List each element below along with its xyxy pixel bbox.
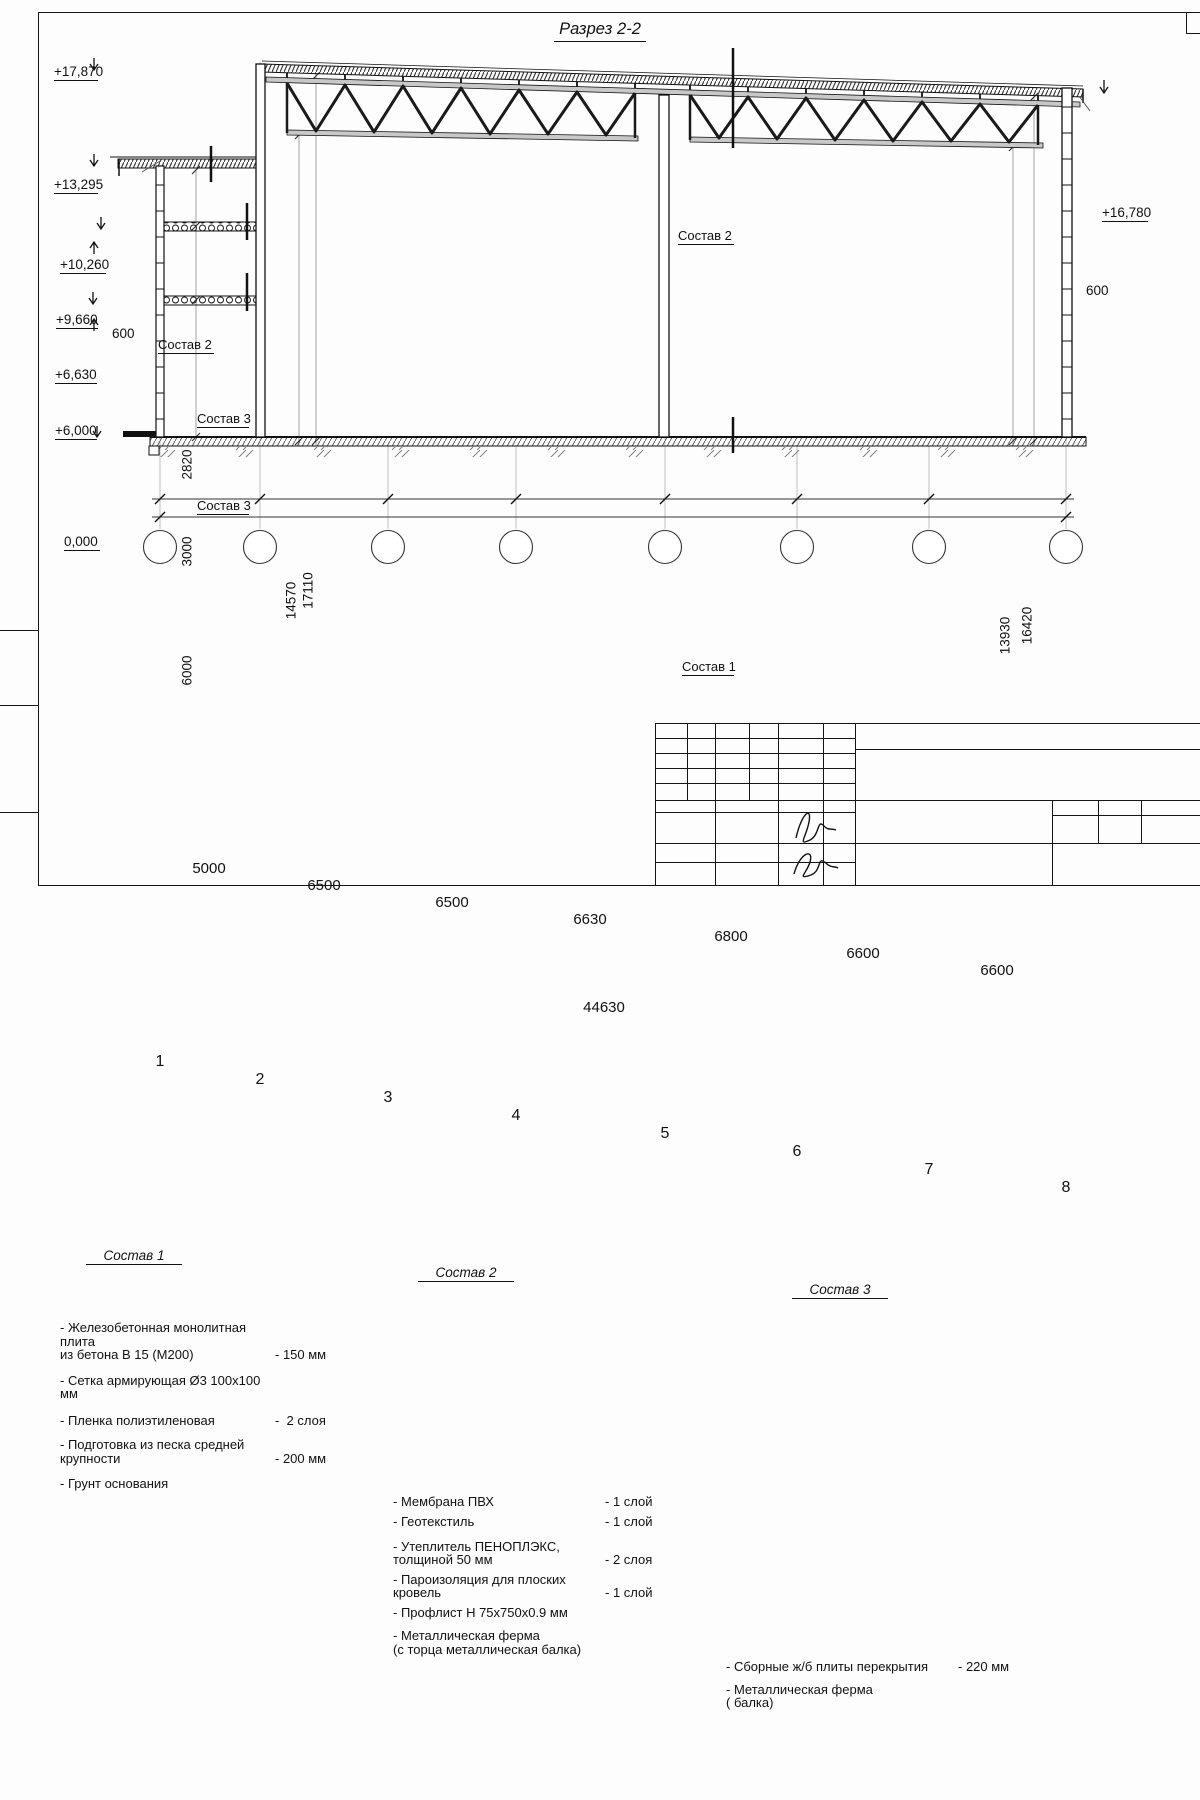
offset-leaders: [142, 96, 1090, 172]
titleblock-line: [655, 812, 855, 813]
grid-axis-5: 5: [649, 1125, 681, 1143]
label-sostav3-lower: Состав 3: [197, 498, 249, 515]
dock-edge: [123, 431, 157, 437]
list-item: - Подготовка из песка средней крупности …: [60, 1438, 340, 1465]
list-item: - Геотекстиль - 1 слой: [393, 1515, 673, 1529]
foundation-stub: [149, 446, 159, 455]
floor-slab: [150, 437, 1086, 446]
wall-grid8: [1062, 88, 1072, 437]
drawing-title: Разрез 2-2: [554, 20, 646, 42]
drawing-sheet: { "sheet": { "title": "Разрез 2-2", "sec…: [0, 0, 1200, 900]
vertical-dim-lines: [196, 74, 1034, 446]
vdim-6000: 6000: [180, 639, 195, 703]
composition3-list: - Сборные ж/б плиты перекрытия - 220 мм …: [726, 1660, 1026, 1710]
hdim-6600b: 6600: [962, 962, 1032, 979]
elevation-13295: +13,295: [54, 177, 98, 194]
composition1-list: - Железобетонная монолитная плита из бет…: [60, 1321, 340, 1491]
vdim-13930: 13930: [998, 604, 1013, 668]
titleblock-line: [749, 723, 750, 800]
label-sostav3-upper: Состав 3: [197, 411, 249, 428]
hdim-6800: 6800: [696, 928, 766, 945]
vdim-3000: 3000: [180, 520, 195, 584]
truss-bottom-chord-right: [690, 137, 1043, 148]
composition1-heading: Состав 1: [86, 1248, 182, 1265]
grid-axis-6: 6: [781, 1143, 813, 1161]
list-item: - Железобетонная монолитная плита из бет…: [60, 1321, 340, 1362]
titleblock-line: [1141, 800, 1142, 843]
composition3-heading: Состав 3: [792, 1282, 888, 1299]
list-item: - Грунт основания: [60, 1477, 340, 1491]
ground-break-marks: [150, 447, 1086, 457]
titleblock-line: [1052, 815, 1200, 816]
label-sostav2-top: Состав 2: [678, 228, 734, 245]
titleblock-line: [778, 723, 779, 885]
elevation-10260: +10,260: [60, 257, 106, 274]
annex-floor-slab-lower: [164, 296, 256, 305]
grid-axis-1: 1: [144, 1053, 176, 1071]
grid-axis-2: 2: [244, 1071, 276, 1089]
column-grid5: [659, 95, 669, 437]
list-item: - Сборные ж/б плиты перекрытия - 220 мм: [726, 1660, 1026, 1674]
titleblock-line: [655, 723, 1200, 724]
titleblock-line: [687, 723, 688, 800]
elevation-6630: +6,630: [55, 367, 97, 384]
annex-floor-slab-upper: [164, 222, 256, 231]
label-sostav2-annex: Состав 2: [158, 337, 214, 354]
hdim-6630: 6630: [555, 911, 625, 928]
list-item: - Утеплитель ПЕНОПЛЭКС, толщиной 50 мм -…: [393, 1540, 673, 1567]
vdim-2820: 2820: [180, 433, 195, 497]
hdim-6600a: 6600: [828, 945, 898, 962]
vdim-17110: 17110: [301, 559, 316, 623]
elevation-arrows: [89, 58, 1108, 437]
annex-roof-slab: [118, 159, 257, 168]
vdim-16420: 16420: [1020, 594, 1035, 658]
composition2-list: - Мембрана ПВХ - 1 слой - Геотекстиль - …: [393, 1495, 673, 1657]
signatures: [794, 813, 838, 876]
list-item: - Профлист Н 75х750х0.9 мм: [393, 1606, 673, 1620]
hdim-total-44630: 44630: [569, 999, 639, 1016]
list-item: - Мембрана ПВХ - 1 слой: [393, 1495, 673, 1509]
label-sostav1: Состав 1: [682, 659, 734, 676]
elevation-6000: +6,000: [55, 423, 97, 440]
list-item: - Пароизоляция для плоских кровель - 1 с…: [393, 1573, 673, 1600]
titleblock-line: [655, 800, 1200, 801]
elevation-9660: +9,660: [56, 312, 98, 329]
annex-wall-grid1: [156, 166, 164, 437]
grid-axis-7: 7: [913, 1161, 945, 1179]
titleblock-line: [655, 723, 656, 885]
titleblock-line: [655, 768, 855, 769]
elevation-16780: +16,780: [1102, 205, 1148, 222]
titleblock-line: [655, 783, 855, 784]
hdim-6500b: 6500: [417, 894, 487, 911]
offset-600-right: 600: [1086, 283, 1200, 298]
grid-axis-4: 4: [500, 1107, 532, 1125]
hdim-6500a: 6500: [289, 877, 359, 894]
titleblock-line: [855, 723, 856, 885]
hdim-5000: 5000: [174, 860, 244, 877]
titleblock-line: [715, 723, 716, 885]
truss-bottom-chord-left: [287, 130, 638, 141]
list-item: - Металлическая ферма (с торца металличе…: [393, 1629, 673, 1656]
column-grid2: [256, 64, 265, 437]
titleblock-line: [655, 753, 855, 754]
list-item: - Металлическая ферма ( балка): [726, 1683, 1026, 1710]
grid-bubbles: [144, 531, 1083, 564]
titleblock-line: [1098, 800, 1099, 843]
dim-slashes: [155, 494, 1071, 522]
vdim-14570: 14570: [284, 569, 299, 633]
grid-axis-8: 8: [1050, 1179, 1082, 1197]
composition2-heading: Состав 2: [418, 1265, 514, 1282]
titleblock-line: [823, 723, 824, 885]
titleblock-line: [655, 843, 1200, 844]
elevation-0000: 0,000: [64, 534, 100, 551]
titleblock-line: [655, 738, 855, 739]
titleblock-line: [655, 862, 855, 863]
list-item: - Пленка полиэтиленовая - 2 слоя: [60, 1414, 340, 1428]
titleblock-line: [855, 749, 1200, 750]
list-item: - Сетка армирующая Ø3 100х100 мм: [60, 1374, 340, 1401]
grid-axis-3: 3: [372, 1089, 404, 1107]
leader-bars: [211, 48, 733, 453]
elevation-17870: +17,870: [54, 64, 98, 81]
offset-600-left: 600: [112, 326, 1200, 341]
